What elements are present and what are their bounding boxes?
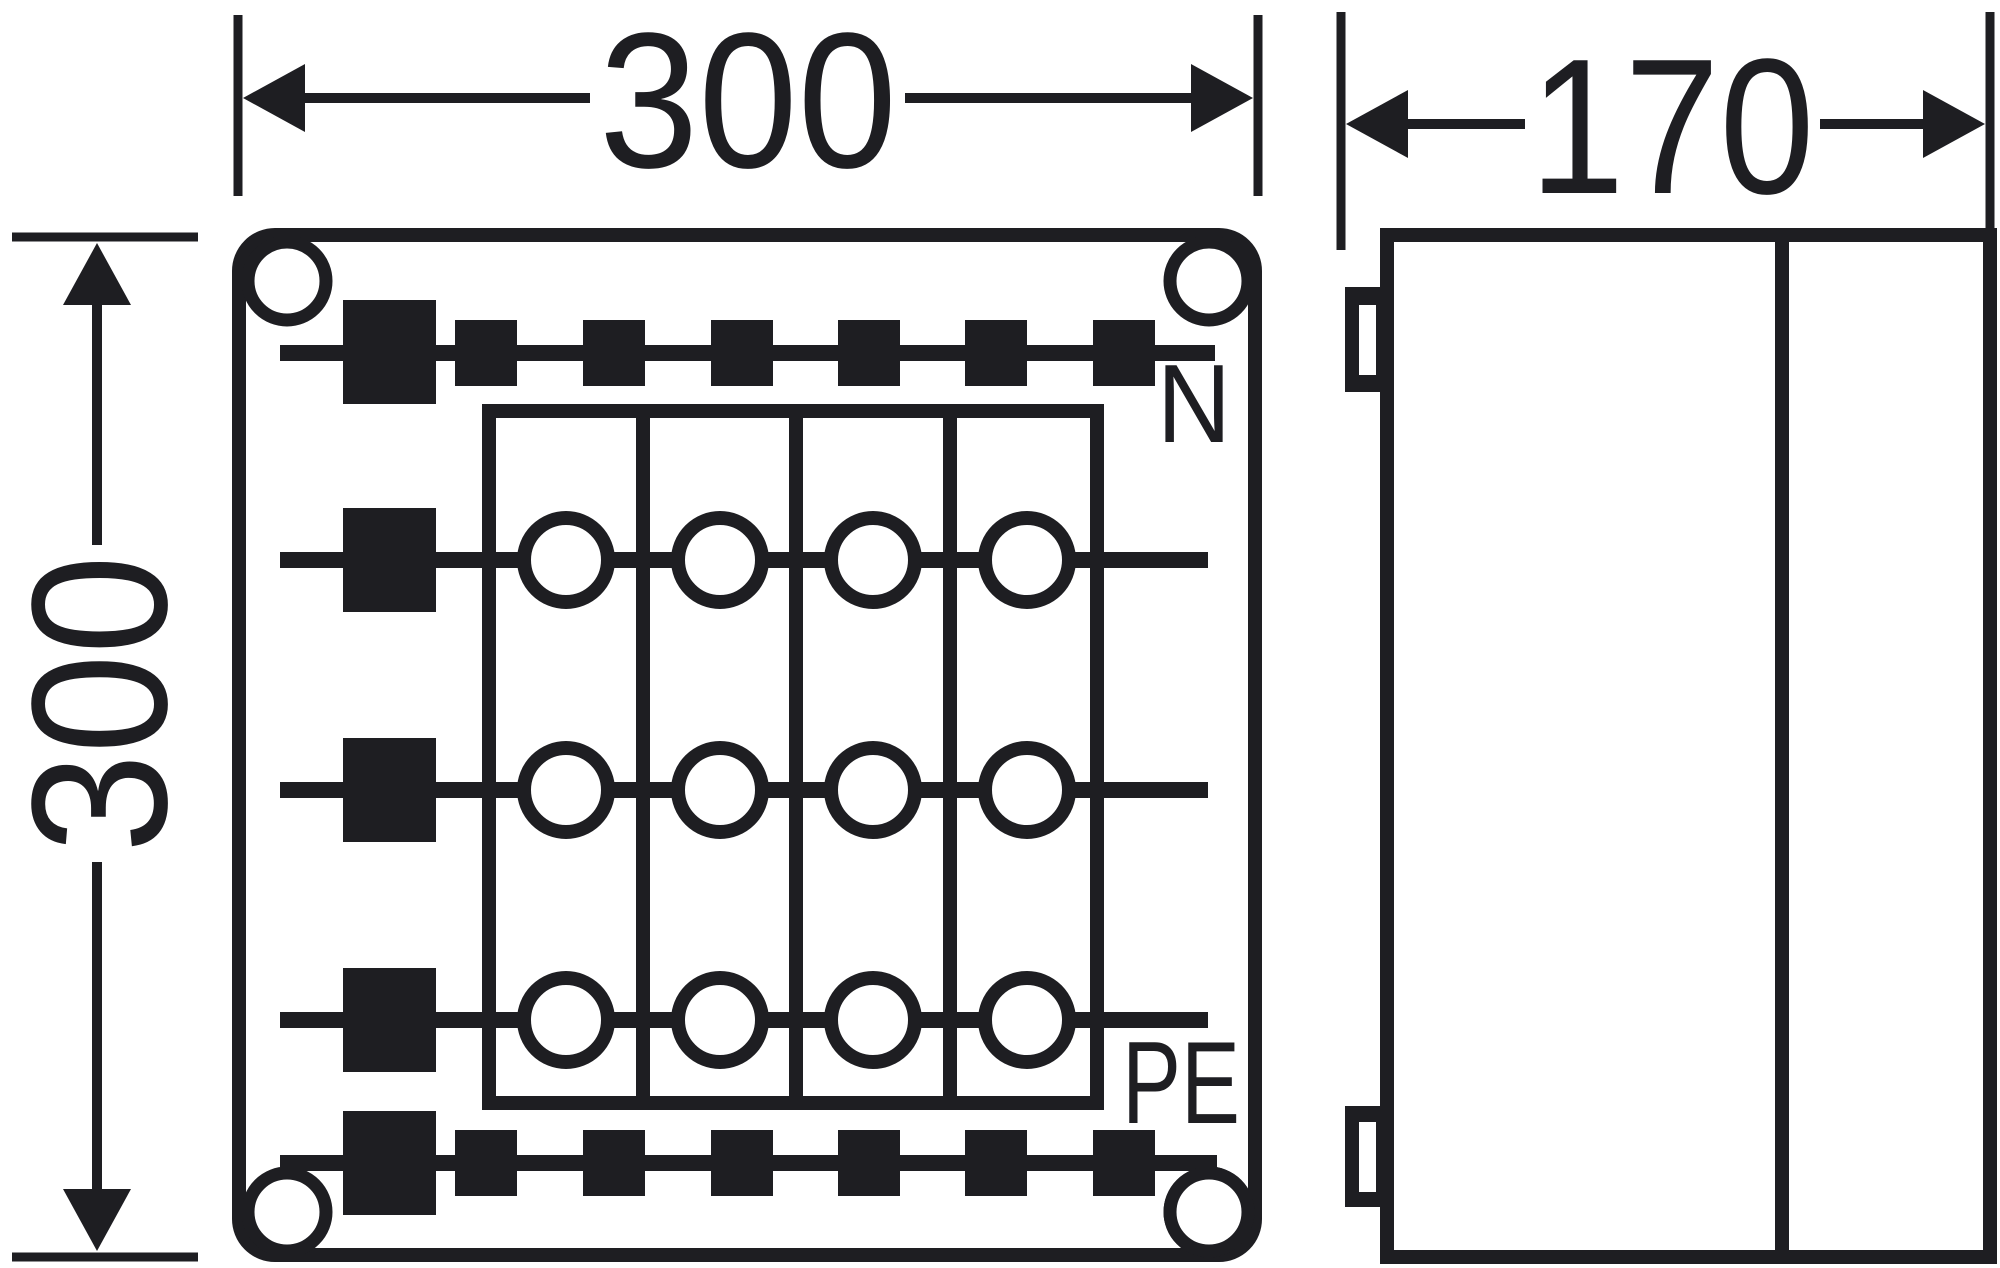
dimension-value-front-height: 300: [0, 555, 207, 853]
enclosure-dimension-drawing: 300 300 170: [0, 0, 2000, 1268]
corner-hole-bottom-left: [248, 1173, 326, 1251]
terminal-circle: [524, 518, 608, 602]
n-clamp: [1093, 320, 1155, 386]
n-clamp: [838, 320, 900, 386]
cable-entry-square: [343, 738, 436, 842]
arrowhead-right-icon: [1923, 90, 1985, 158]
mounting-clip-bottom: [1345, 1106, 1387, 1207]
terminal-circle: [831, 978, 915, 1062]
n-terminal-block: [343, 300, 436, 404]
n-clamp: [583, 320, 645, 386]
terminal-circle: [678, 518, 762, 602]
dimension-side-depth: 170: [1341, 12, 1990, 250]
pe-clamp: [455, 1130, 517, 1196]
terminal-circle: [678, 978, 762, 1062]
cable-entry-square: [343, 968, 436, 1072]
terminal-circle: [831, 518, 915, 602]
pe-label: PE: [1122, 1017, 1240, 1148]
enclosure-side-outline: [1387, 235, 1990, 1257]
n-clamp: [455, 320, 517, 386]
terminal-circle: [985, 978, 1069, 1062]
n-clamp: [711, 320, 773, 386]
corner-hole-top-right: [1170, 242, 1248, 320]
arrowhead-left-icon: [1346, 90, 1408, 158]
n-clamp: [965, 320, 1027, 386]
arrowhead-left-icon: [243, 64, 305, 132]
dimension-value-side-depth: 170: [1530, 18, 1815, 234]
pe-clamp: [965, 1130, 1027, 1196]
side-view: [1345, 235, 1990, 1257]
terminal-block: [489, 411, 1097, 1103]
corner-hole-top-left: [248, 242, 326, 320]
arrowhead-down-icon: [63, 1189, 131, 1251]
corner-hole-bottom-right-overlay: [1170, 1173, 1248, 1251]
arrowhead-right-icon: [1191, 64, 1253, 132]
n-label: N: [1157, 342, 1231, 466]
terminal-circle: [678, 748, 762, 832]
pe-clamp: [838, 1130, 900, 1196]
dimension-front-height: 300: [0, 237, 207, 1257]
clip-slot: [1359, 305, 1376, 375]
clip-slot: [1359, 1122, 1376, 1192]
terminal-circle: [524, 978, 608, 1062]
terminal-circle: [985, 518, 1069, 602]
dimension-front-width: 300: [238, 0, 1258, 208]
cable-entry-square: [343, 508, 436, 612]
pe-clamp: [583, 1130, 645, 1196]
terminal-circle: [524, 748, 608, 832]
pe-clamp: [711, 1130, 773, 1196]
front-view: N: [239, 235, 1255, 1255]
terminal-circle: [985, 748, 1069, 832]
terminal-circle: [831, 748, 915, 832]
n-busbar: N: [280, 300, 1231, 466]
mounting-clip-top: [1345, 287, 1387, 392]
dimension-value-front-width: 300: [599, 0, 897, 208]
arrowhead-up-icon: [63, 243, 131, 305]
pe-terminal-block: [343, 1111, 436, 1215]
